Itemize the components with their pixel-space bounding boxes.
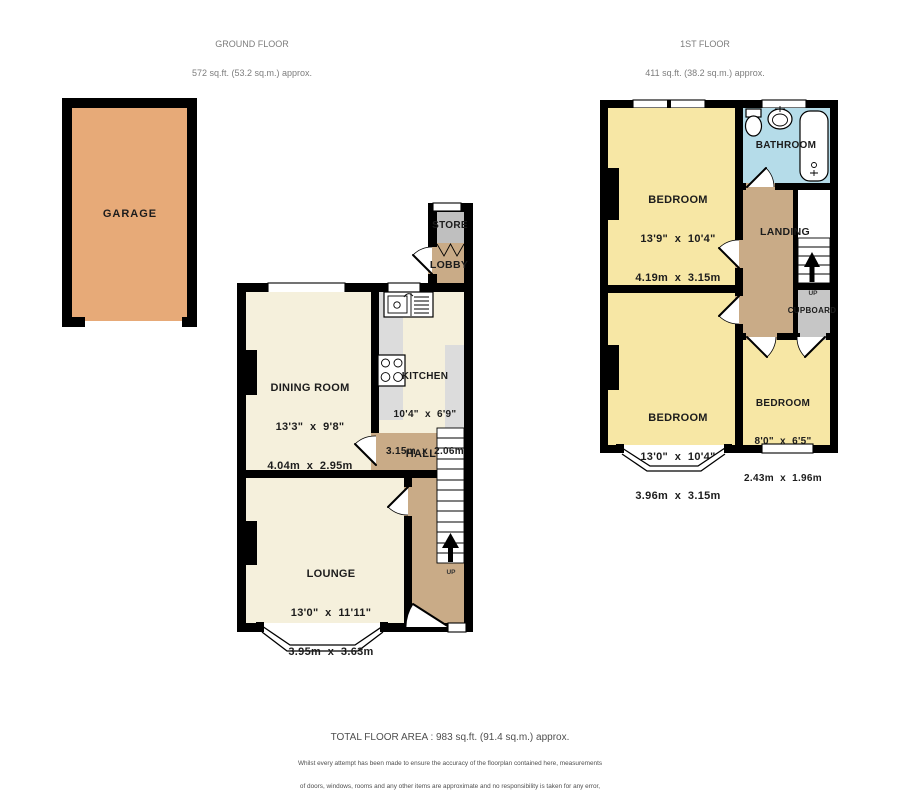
landing-label: LANDING: [760, 226, 810, 238]
room-name: BEDROOM: [635, 194, 720, 207]
lounge-label: LOUNGE 13'0" x 11'11" 3.95m x 3.63m: [288, 542, 373, 685]
landing-floor: [743, 190, 793, 333]
dining-room-label: DINING ROOM 13'3" x 9'8" 4.04m x 2.95m: [267, 356, 352, 499]
dining-window: [268, 283, 345, 293]
bedroom2-label: BEDROOM 13'0" x 10'4" 3.96m x 3.15m: [635, 386, 720, 529]
front-door-threshold: [448, 623, 466, 632]
first-floor-area: 411 sq.ft. (38.2 sq.m.) approx.: [645, 69, 764, 79]
room-dims-m: 3.96m x 3.15m: [635, 490, 720, 503]
ground-floor-header: GROUND FLOOR 572 sq.ft. (53.2 sq.m.) app…: [192, 21, 312, 97]
store-window: [433, 203, 461, 211]
total-floor-area: TOTAL FLOOR AREA : 983 sq.ft. (91.4 sq.m…: [331, 732, 570, 743]
room-dims-m: 4.19m x 3.15m: [635, 272, 720, 285]
room-name: DINING ROOM: [267, 382, 352, 395]
first-floor-header: 1ST FLOOR 411 sq.ft. (38.2 sq.m.) approx…: [645, 21, 764, 97]
bathroom-window: [762, 100, 806, 108]
kitchen-sink-icon: [384, 292, 433, 317]
room-name: KITCHEN: [386, 371, 464, 384]
room-dims-m: 3.95m x 3.63m: [288, 646, 373, 659]
room-dims-ft: 13'9" x 10'4": [635, 233, 720, 246]
room-dims-m: 4.04m x 2.95m: [267, 460, 352, 473]
room-name: BEDROOM: [635, 412, 720, 425]
cupboard-label: CUPBOARD: [788, 306, 837, 315]
up-label-first: UP: [808, 290, 817, 297]
hall-label: HALL: [406, 448, 437, 460]
room-dims-ft: 13'0" x 11'11": [288, 607, 373, 620]
bathroom-label: BATHROOM: [756, 140, 817, 151]
chimney-breast: [246, 350, 257, 395]
hall-floor: [412, 478, 437, 623]
chimney-breast: [608, 168, 619, 220]
room-name: LOUNGE: [288, 568, 373, 581]
room-name: BEDROOM: [744, 398, 822, 411]
bedroom1-label: BEDROOM 13'9" x 10'4" 4.19m x 3.15m: [635, 168, 720, 311]
first-floor-title: 1ST FLOOR: [645, 40, 764, 50]
room-dims-ft: 13'0" x 10'4": [635, 451, 720, 464]
stairs-first: [798, 238, 830, 283]
disclaimer-line: of doors, windows, rooms and any other i…: [296, 783, 604, 790]
room-dims-ft: 10'4" x 6'9": [386, 409, 464, 422]
ground-floor-title: GROUND FLOOR: [192, 40, 312, 50]
chimney-breast: [246, 521, 257, 565]
store-label: STORE: [432, 220, 468, 231]
lobby-label: LOBBY: [430, 259, 468, 271]
chimney-breast: [608, 345, 619, 390]
garage-label: GARAGE: [103, 208, 157, 220]
up-label-ground: UP: [446, 569, 455, 576]
room-dims-ft: 8'0" x 6'5": [744, 436, 822, 449]
bedroom3-label: BEDROOM 8'0" x 6'5" 2.43m x 1.96m: [744, 373, 822, 511]
room-dims-ft: 13'3" x 9'8": [267, 421, 352, 434]
disclaimer-line: Whilst every attempt has been made to en…: [296, 760, 604, 768]
ground-floor-area: 572 sq.ft. (53.2 sq.m.) approx.: [192, 69, 312, 79]
toilet-icon: [746, 109, 762, 136]
disclaimer: Whilst every attempt has been made to en…: [296, 745, 604, 790]
kitchen-label: KITCHEN 10'4" x 6'9" 3.15m x 2.06m: [386, 346, 464, 484]
floorplan-canvas: GROUND FLOOR 572 sq.ft. (53.2 sq.m.) app…: [0, 0, 900, 790]
room-dims-m: 2.43m x 1.96m: [744, 473, 822, 486]
